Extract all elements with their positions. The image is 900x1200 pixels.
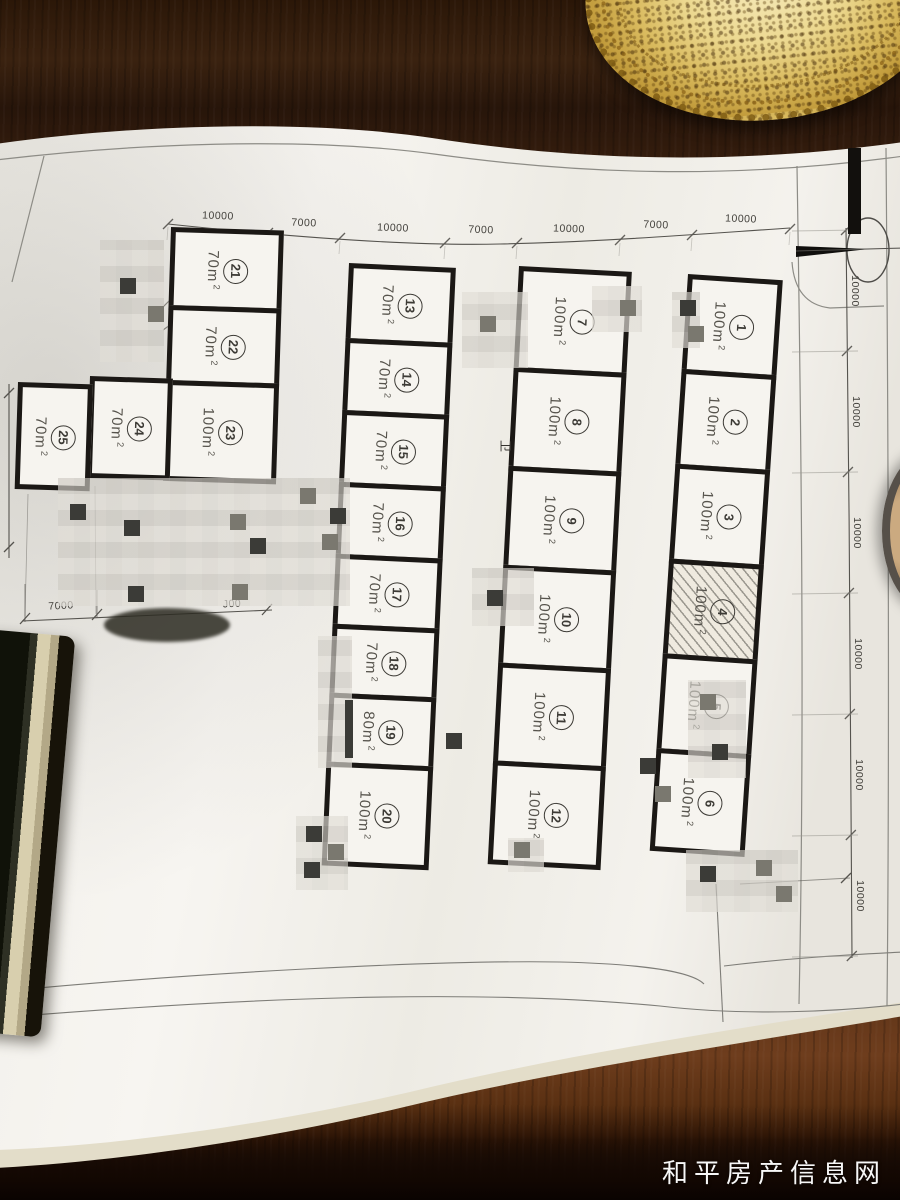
area-superscript: 2 — [703, 534, 713, 541]
unit-number-badge: 3 — [715, 504, 742, 531]
unit-label: 2470m2 — [108, 408, 152, 450]
area-value: 70m — [361, 642, 379, 675]
area-superscript: 2 — [382, 392, 392, 398]
area-superscript: 2 — [211, 284, 221, 290]
unit-area-label: 100m2 — [696, 490, 715, 540]
censor-mosaic-square — [688, 326, 704, 342]
unit-area-label: 70m2 — [368, 502, 386, 543]
area-value: 70m — [31, 416, 49, 449]
plan-unit-14: 1470m2 — [342, 338, 452, 420]
unit-label: 8100m2 — [545, 396, 591, 448]
censor-mosaic-square — [120, 278, 136, 294]
plan-unit-11: 11100m2 — [493, 662, 611, 771]
censor-mosaic-square — [480, 316, 496, 332]
plan-unit-15: 1570m2 — [339, 410, 449, 492]
area-superscript: 2 — [684, 820, 694, 827]
unit-label: 1870m2 — [362, 642, 407, 684]
censor-mosaic-square — [700, 694, 716, 710]
plan-unit-23: 23100m2 — [163, 380, 279, 484]
unit-number-badge: 20 — [373, 803, 399, 829]
area-value: 70m — [107, 407, 125, 440]
unit-area-label: 70m2 — [202, 326, 219, 367]
unit-label: 1570m2 — [372, 430, 417, 472]
shadow-blob — [104, 608, 230, 642]
unit-label: 1100m2 — [709, 301, 755, 353]
unit-number-badge: 13 — [397, 293, 423, 319]
area-value: 70m — [365, 572, 383, 605]
dimension-label: 7000 — [468, 224, 494, 237]
plan-unit-4: 4100m2 — [662, 558, 763, 664]
unit-number-badge: 23 — [217, 420, 243, 446]
area-superscript: 2 — [115, 442, 125, 448]
unit-area-label: 70m2 — [375, 358, 393, 399]
censor-mosaic-square — [148, 306, 164, 322]
unit-area-label: 70m2 — [108, 408, 125, 449]
unit-number-badge: 19 — [377, 719, 403, 745]
censor-mosaic-square — [640, 758, 656, 774]
unit-label: 1770m2 — [365, 573, 410, 615]
unit-label: 6100m2 — [677, 776, 723, 828]
watermark-text: 和平房产信息网 — [662, 1153, 886, 1190]
unit-area-label: 70m2 — [365, 573, 383, 614]
unit-label: 9100m2 — [539, 495, 585, 547]
plan-unit-25: 2570m2 — [15, 382, 93, 491]
unit-area-label: 70m2 — [32, 416, 49, 457]
plan-unit-9: 9100m2 — [503, 466, 621, 576]
censor-mosaic-square — [446, 733, 462, 749]
unit-label: 7100m2 — [550, 296, 596, 348]
unit-area-label: 100m2 — [539, 495, 558, 545]
censor-mosaic-square — [250, 538, 266, 554]
unit-label: 2170m2 — [204, 249, 248, 291]
dimension-label: 10000 — [850, 396, 862, 428]
area-superscript: 2 — [552, 440, 562, 447]
unit-area-label: 100m2 — [550, 296, 569, 346]
unit-number-badge: 15 — [390, 438, 416, 464]
plan-unit-3: 3100m2 — [669, 464, 770, 570]
unit-label: 1670m2 — [368, 502, 413, 544]
small-plan-glyph: 卫 — [498, 440, 515, 452]
area-superscript: 2 — [546, 539, 556, 546]
area-value: 70m — [201, 326, 219, 359]
censor-mosaic-square — [330, 508, 346, 524]
unit-area-label: 100m2 — [703, 396, 722, 446]
plan-unit-22: 2270m2 — [166, 305, 281, 389]
area-superscript: 2 — [536, 735, 546, 742]
unit-area-label: 80m2 — [359, 711, 377, 752]
censor-mosaic-square — [328, 844, 344, 860]
area-superscript: 2 — [372, 607, 382, 613]
unit-area-label: 100m2 — [529, 691, 548, 741]
unit-number-badge: 16 — [387, 510, 413, 536]
unit-area-label: 70m2 — [378, 284, 396, 325]
censor-mosaic-square — [124, 520, 140, 536]
area-superscript: 2 — [697, 629, 707, 636]
area-value: 100m — [539, 495, 558, 537]
area-value: 100m — [709, 301, 729, 344]
unit-label: 2570m2 — [32, 416, 76, 458]
unit-label: 12100m2 — [524, 789, 570, 841]
unit-number-badge: 18 — [380, 650, 406, 676]
area-superscript: 2 — [541, 637, 551, 644]
censor-mosaic-square — [655, 786, 671, 802]
area-value: 100m — [696, 490, 716, 533]
unit-label: 2270m2 — [202, 326, 246, 368]
area-value: 70m — [374, 358, 392, 391]
unit-area-label: 70m2 — [204, 249, 221, 290]
censor-mosaic-square — [848, 148, 861, 234]
area-value: 100m — [534, 593, 553, 635]
dimension-label: 10000 — [376, 221, 408, 234]
censor-mosaic-square — [487, 590, 503, 606]
censor-mosaic-square — [306, 826, 322, 842]
unit-label: 4100m2 — [690, 585, 736, 637]
dimension-label: 10000 — [853, 759, 865, 791]
unit-label: 2100m2 — [703, 396, 749, 448]
censor-mosaic-square — [514, 842, 530, 858]
plan-unit-13: 1370m2 — [345, 263, 456, 348]
dimension-label: 10000 — [849, 275, 861, 307]
area-value: 70m — [368, 502, 386, 535]
censor-mosaic-square — [620, 300, 636, 316]
censor-mosaic-square — [322, 534, 338, 550]
area-superscript: 2 — [557, 340, 567, 347]
area-superscript: 2 — [206, 450, 216, 456]
area-value: 80m — [358, 711, 376, 744]
area-value: 100m — [677, 776, 697, 819]
unit-number-badge: 8 — [563, 409, 589, 435]
unit-number-badge: 1 — [728, 314, 755, 341]
unit-number-badge: 11 — [548, 704, 574, 730]
unit-number-badge: 4 — [709, 599, 736, 626]
area-value: 70m — [203, 249, 221, 282]
censor-mosaic-square — [70, 504, 86, 520]
area-value: 100m — [354, 790, 373, 832]
censor-mosaic — [688, 680, 746, 778]
unit-number-badge: 17 — [383, 581, 409, 607]
area-superscript: 2 — [716, 345, 726, 352]
unit-label: 1980m2 — [359, 711, 404, 753]
unit-label: 10100m2 — [534, 593, 580, 645]
plan-unit-16: 1670m2 — [336, 482, 446, 564]
area-superscript: 2 — [375, 536, 385, 542]
unit-label: 1470m2 — [375, 358, 420, 400]
unit-area-label: 100m2 — [534, 593, 553, 643]
unit-number-badge: 10 — [553, 606, 579, 632]
unit-area-label: 100m2 — [709, 301, 728, 351]
unit-label: 23100m2 — [199, 407, 244, 458]
censor-mosaic-square — [304, 862, 320, 878]
area-superscript: 2 — [209, 360, 219, 366]
unit-area-label: 100m2 — [199, 407, 217, 457]
unit-column: 2570m2 — [15, 382, 93, 491]
unit-label: 3100m2 — [696, 490, 742, 542]
unit-number-badge: 6 — [696, 790, 723, 817]
unit-number-badge: 25 — [50, 424, 76, 450]
unit-area-label: 100m2 — [690, 585, 709, 635]
censor-mosaic-square — [680, 300, 696, 316]
censor-mosaic-square — [300, 488, 316, 504]
censor-mosaic-square — [345, 700, 353, 758]
area-value: 100m — [529, 691, 548, 733]
area-superscript: 2 — [369, 676, 379, 682]
dimension-label: 7000 — [291, 216, 317, 229]
censor-mosaic — [100, 240, 164, 362]
plan-unit-12: 12100m2 — [488, 760, 606, 870]
area-superscript: 2 — [379, 464, 389, 470]
censor-mosaic — [472, 568, 534, 626]
plan-unit-24: 2470m2 — [87, 376, 173, 481]
area-value: 100m — [549, 296, 568, 338]
dimension-label: 10000 — [852, 638, 864, 670]
unit-number-badge: 22 — [220, 334, 246, 360]
unit-area-label: 70m2 — [362, 642, 380, 683]
area-value: 100m — [544, 396, 563, 438]
unit-area-label: 100m2 — [677, 776, 696, 826]
unit-number-badge: 12 — [543, 803, 569, 829]
area-superscript: 2 — [366, 745, 376, 751]
area-superscript: 2 — [362, 834, 372, 840]
area-value: 70m — [378, 284, 396, 317]
censor-mosaic-square — [232, 584, 248, 600]
unit-column: 2170m22270m223100m2 — [163, 227, 284, 484]
dimension-label: 7000 — [643, 218, 669, 231]
unit-area-label: 100m2 — [545, 396, 564, 446]
area-superscript: 2 — [710, 440, 720, 447]
censor-mosaic-square — [128, 586, 144, 602]
censor-mosaic-square — [712, 744, 728, 760]
unit-label: 20100m2 — [355, 790, 400, 841]
censor-mosaic-square — [756, 860, 772, 876]
dimension-label: 10000 — [552, 222, 584, 235]
area-superscript: 2 — [39, 450, 49, 456]
area-value: 100m — [690, 585, 710, 628]
unit-number-badge: 9 — [558, 508, 584, 534]
area-superscript: 2 — [385, 319, 395, 325]
area-value: 100m — [523, 789, 542, 831]
unit-number-badge: 7 — [568, 309, 594, 335]
censor-mosaic-square — [700, 866, 716, 882]
censor-mosaic-square — [230, 514, 246, 530]
area-value: 70m — [371, 430, 389, 463]
area-value: 100m — [198, 407, 216, 449]
censor-mosaic-square — [776, 886, 792, 902]
unit-number-badge: 21 — [222, 258, 248, 284]
unit-number-badge: 24 — [126, 416, 152, 442]
unit-number-badge: 2 — [721, 409, 748, 436]
unit-area-label: 100m2 — [355, 790, 373, 840]
dimension-label: 10000 — [725, 212, 757, 225]
plan-unit-2: 2100m2 — [675, 369, 776, 475]
unit-area-label: 70m2 — [372, 430, 390, 471]
plan-unit-8: 8100m2 — [508, 367, 626, 477]
unit-label: 1370m2 — [378, 284, 423, 326]
dimension-label: 10000 — [854, 880, 866, 912]
unit-column: 2470m2 — [87, 376, 173, 481]
unit-number-badge: 14 — [393, 366, 419, 392]
dimension-label: 10000 — [851, 517, 863, 549]
area-value: 100m — [702, 396, 722, 439]
unit-label: 11100m2 — [529, 691, 575, 743]
unit-area-label: 100m2 — [524, 789, 543, 839]
dimension-label: 10000 — [202, 209, 234, 222]
plan-unit-21: 2170m2 — [168, 227, 284, 314]
photo-of-site-plan: 和平房产信息网 1100m22100m23100m24100m25100m261… — [0, 0, 900, 1200]
